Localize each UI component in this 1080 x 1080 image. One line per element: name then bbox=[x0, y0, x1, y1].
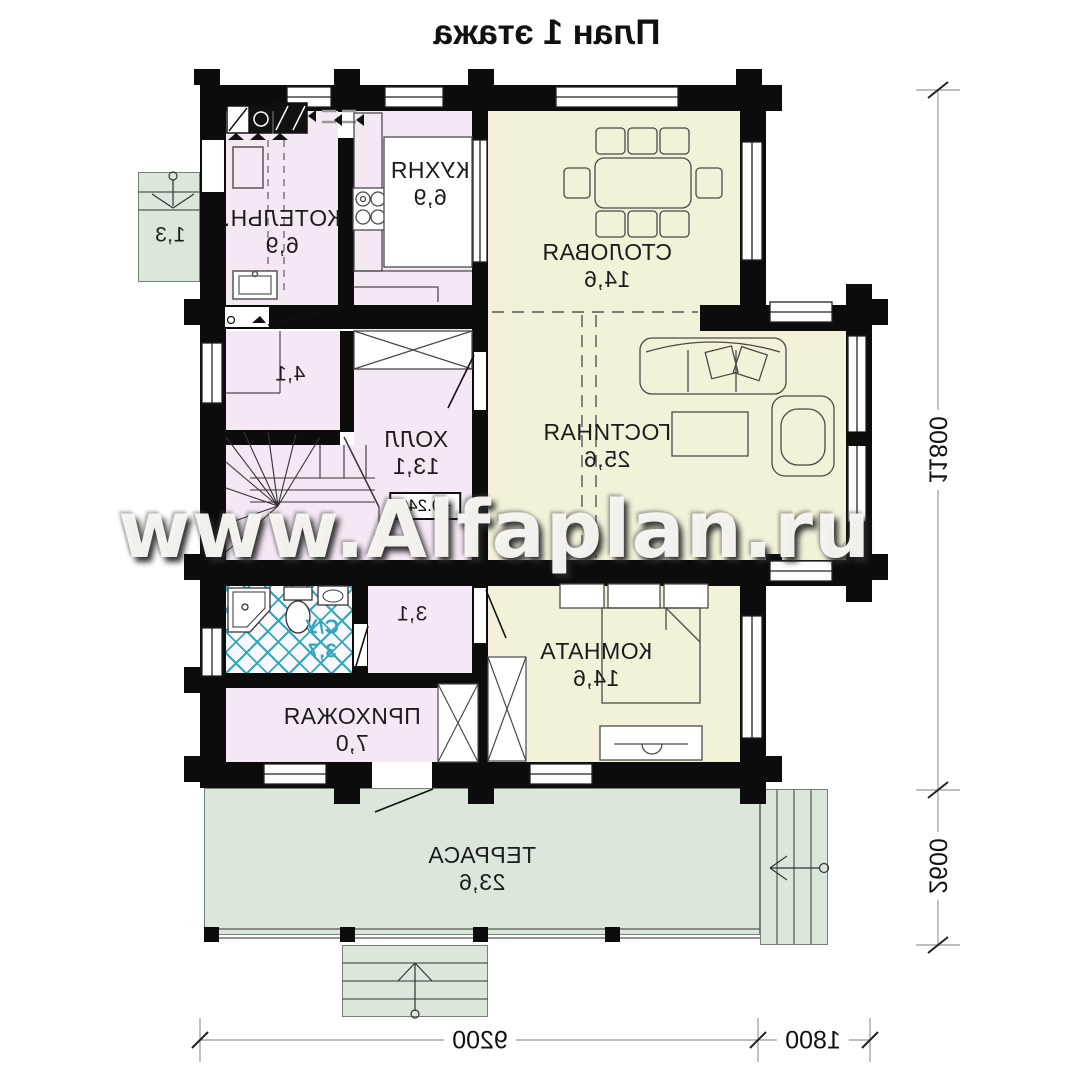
label-room41: 4,1 bbox=[275, 363, 306, 388]
label-living: ГОСТИНАЯ25,6 bbox=[543, 419, 671, 473]
label-boiler: КОТЕЛЬН.6,9 bbox=[223, 205, 341, 259]
watermark: www.Alfaplan.ru bbox=[118, 484, 871, 576]
label-bedroom: КОМНАТА14,6 bbox=[540, 638, 652, 692]
porch-details bbox=[138, 172, 200, 210]
dining-table-set bbox=[564, 128, 722, 237]
floor-plan-page: План 1 этажа www.Alfaplan.ru bbox=[0, 0, 1080, 1080]
room41-fixtures bbox=[226, 331, 280, 393]
terrace-details bbox=[204, 790, 829, 1018]
boiler-equipment bbox=[227, 103, 356, 299]
label-terrace: ТЕРРАСА23,6 bbox=[428, 842, 536, 896]
dim-bottom-main: 9200 bbox=[444, 1027, 516, 1056]
label-porch: 1,3 bbox=[155, 224, 186, 249]
label-entry: ПРИХОЖАЯ7,0 bbox=[283, 703, 421, 757]
wardrobes bbox=[438, 657, 526, 762]
dim-right-total: 11800 bbox=[923, 410, 952, 490]
label-dining: СТОЛОВАЯ14,6 bbox=[542, 239, 672, 293]
hall-closet bbox=[354, 331, 472, 369]
label-room31: 3,1 bbox=[397, 603, 428, 628]
page-title: План 1 этажа bbox=[433, 13, 660, 53]
dim-right-terrace: 2600 bbox=[923, 832, 952, 900]
dim-bottom-right: 1800 bbox=[777, 1027, 849, 1056]
label-hall: ХОЛЛ13,1 bbox=[384, 426, 448, 480]
label-bath: С/У3,7 bbox=[305, 616, 339, 663]
label-kitchen: КУХНЯ6,9 bbox=[390, 157, 469, 211]
